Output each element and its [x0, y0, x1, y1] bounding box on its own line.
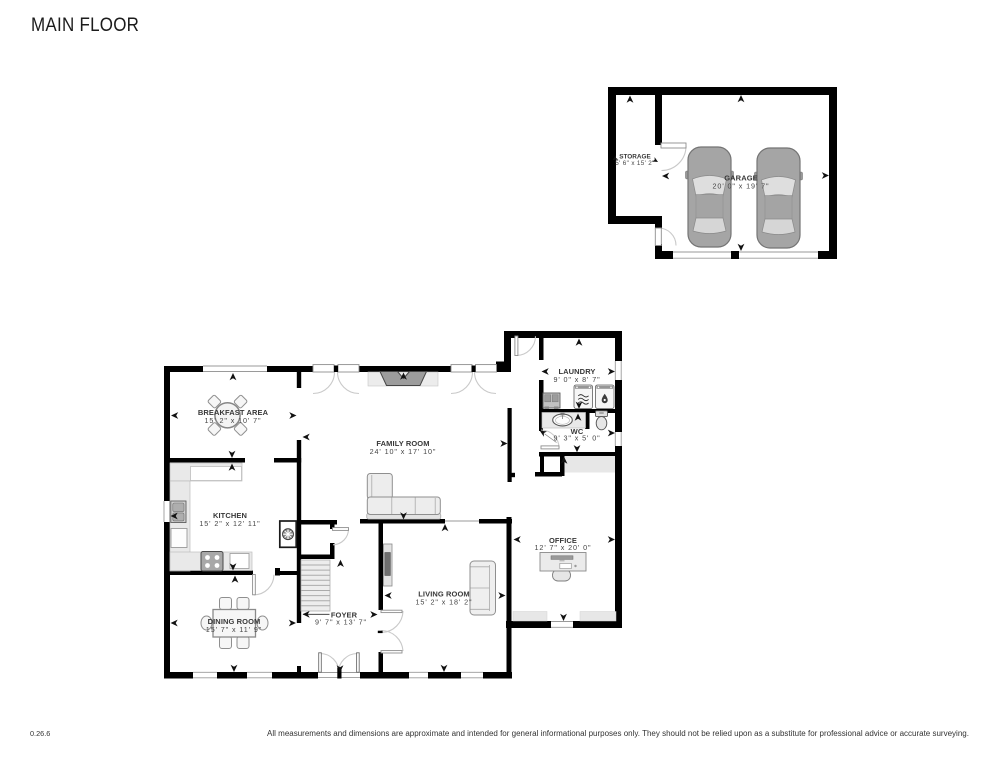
- svg-text:15' 2" x 12' 11": 15' 2" x 12' 11": [199, 519, 260, 528]
- svg-text:0.26.6: 0.26.6: [30, 729, 50, 738]
- svg-text:24' 10" x 17' 10": 24' 10" x 17' 10": [370, 447, 437, 456]
- svg-text:15' 2" x 18' 2": 15' 2" x 18' 2": [416, 597, 473, 606]
- svg-text:15' 2" x 10' 7": 15' 2" x 10' 7": [205, 416, 262, 425]
- svg-text:9' 3" x 5' 0": 9' 3" x 5' 0": [553, 434, 600, 443]
- svg-text:12' 7" x 20' 0": 12' 7" x 20' 0": [535, 543, 592, 552]
- svg-text:20' 0" x 19' 7": 20' 0" x 19' 7": [713, 182, 770, 191]
- svg-text:15' 7" x 11' 9": 15' 7" x 11' 9": [206, 625, 262, 634]
- svg-text:All measurements and dimension: All measurements and dimensions are appr…: [267, 729, 969, 738]
- svg-text:9' 7" x 13' 7": 9' 7" x 13' 7": [315, 617, 367, 626]
- svg-text:MAIN FLOOR: MAIN FLOOR: [31, 14, 139, 35]
- svg-text:5' 6" x 15' 2": 5' 6" x 15' 2": [615, 160, 654, 167]
- svg-text:9' 0" x 8' 7": 9' 0" x 8' 7": [553, 375, 600, 384]
